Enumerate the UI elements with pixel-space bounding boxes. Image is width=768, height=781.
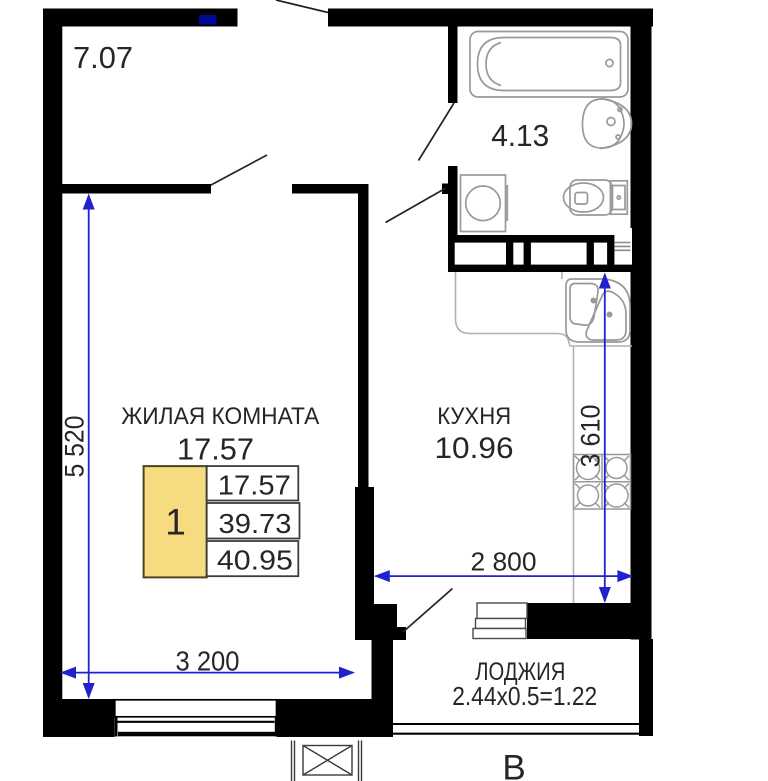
- svg-text:17.57: 17.57: [177, 432, 254, 467]
- svg-text:2.44x0.5=1.22: 2.44x0.5=1.22: [452, 681, 597, 711]
- svg-text:10.96: 10.96: [435, 432, 514, 465]
- svg-text:2 800: 2 800: [471, 547, 537, 577]
- svg-text:1: 1: [165, 502, 186, 543]
- svg-text:17.57: 17.57: [218, 470, 291, 501]
- svg-text:В: В: [502, 749, 525, 781]
- svg-text:3 610: 3 610: [576, 405, 606, 468]
- svg-text:КУХНЯ: КУХНЯ: [437, 403, 511, 430]
- svg-text:4.13: 4.13: [491, 118, 549, 153]
- svg-text:39.73: 39.73: [219, 508, 292, 539]
- svg-text:5 520: 5 520: [60, 416, 90, 478]
- svg-text:ЖИЛАЯ КОМНАТА: ЖИЛАЯ КОМНАТА: [121, 403, 319, 430]
- svg-text:7.07: 7.07: [73, 40, 133, 75]
- svg-text:40.95: 40.95: [217, 545, 293, 576]
- svg-text:3 200: 3 200: [176, 645, 240, 676]
